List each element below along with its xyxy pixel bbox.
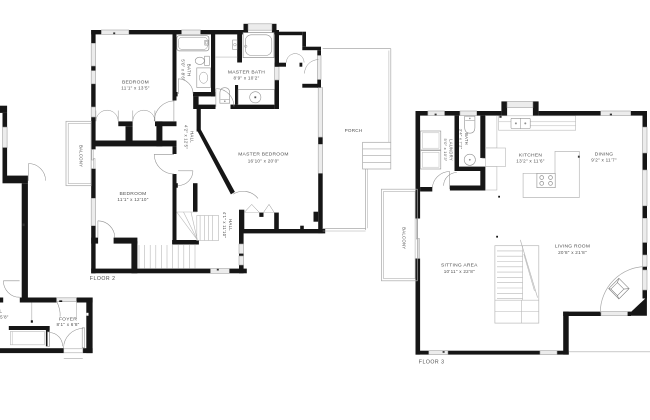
svg-text:FLOOR 3: FLOOR 3: [419, 359, 445, 365]
svg-text:16’10" x 20’0": 16’10" x 20’0": [248, 158, 280, 163]
svg-text:MASTER BEDROOM: MASTER BEDROOM: [238, 152, 289, 158]
svg-text:BALCONY: BALCONY: [402, 227, 407, 249]
svg-text:LIVING ROOM: LIVING ROOM: [555, 243, 590, 249]
svg-text:9’2" x 11’7": 9’2" x 11’7": [591, 158, 617, 163]
svg-text:10’11" x 22’8": 10’11" x 22’8": [444, 269, 475, 274]
svg-text:HALL: HALL: [0, 309, 2, 314]
svg-text:KITCHEN: KITCHEN: [519, 152, 542, 158]
svg-text:SITTING AREA: SITTING AREA: [441, 262, 478, 268]
svg-text:4’2" x 12’5": 4’2" x 12’5": [184, 125, 189, 149]
svg-text:HALL: HALL: [190, 131, 195, 143]
svg-text:3’4" x 7’2": 3’4" x 7’2": [458, 129, 463, 150]
svg-text:4’1" x 11’10": 4’1" x 11’10": [222, 212, 227, 238]
svg-text:11’1" x 13’5": 11’1" x 13’5": [121, 85, 150, 90]
svg-text:8’9" x 10’2": 8’9" x 10’2": [234, 76, 260, 81]
svg-text:BALCONY: BALCONY: [79, 145, 84, 167]
svg-text:5’8": 5’8": [0, 315, 9, 320]
svg-text:8’1" x 6’8": 8’1" x 6’8": [56, 322, 79, 327]
svg-text:5’0" x 10’3": 5’0" x 10’3": [443, 139, 448, 162]
svg-text:BATH: BATH: [464, 133, 469, 145]
svg-text:BATH: BATH: [186, 64, 191, 76]
svg-text:LAUNDRY: LAUNDRY: [449, 139, 454, 161]
svg-text:20’8" x 21’8": 20’8" x 21’8": [558, 250, 587, 255]
svg-text:PORCH: PORCH: [345, 128, 363, 133]
svg-text:HALL: HALL: [228, 219, 233, 231]
svg-text:MASTER BATH: MASTER BATH: [228, 70, 265, 76]
svg-text:13’2" x 11’6": 13’2" x 11’6": [516, 159, 545, 164]
svg-text:FLOOR 2: FLOOR 2: [90, 276, 116, 282]
svg-text:5’0" x 8’6": 5’0" x 8’6": [181, 59, 186, 81]
svg-text:11’1" x 12’10": 11’1" x 12’10": [117, 197, 148, 202]
svg-text:DINING: DINING: [595, 151, 614, 157]
